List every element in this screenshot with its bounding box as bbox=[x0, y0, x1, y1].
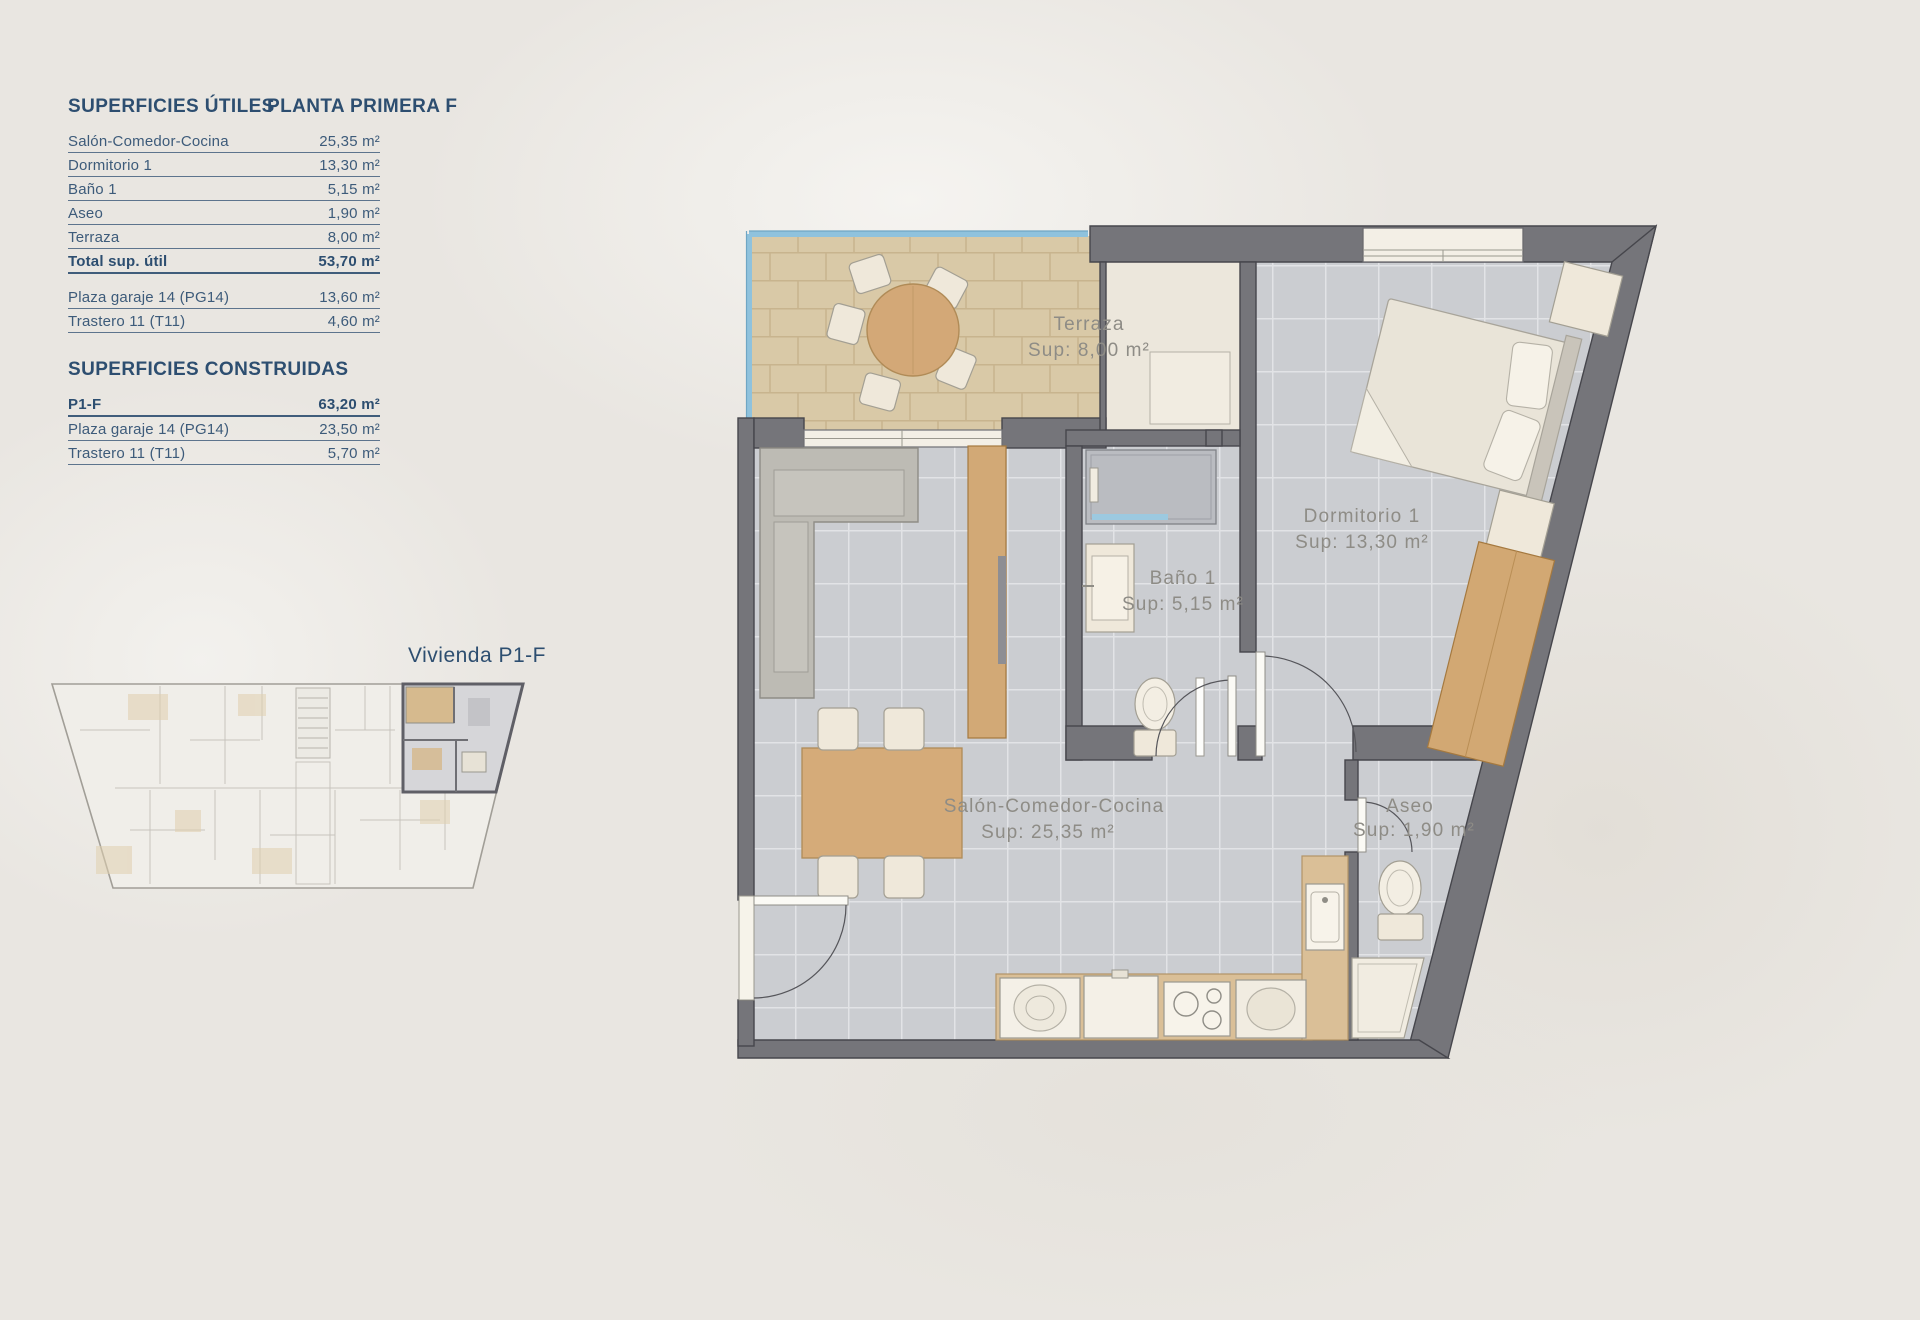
highlighted-unit-p1f bbox=[403, 684, 523, 792]
shower-drain-glass bbox=[1092, 514, 1168, 520]
room-label-bano: Baño 1 bbox=[1150, 568, 1217, 589]
room-sup-dormitorio: Sup: 13,30 m² bbox=[1295, 532, 1429, 553]
room-label-terraza: Terraza bbox=[1053, 314, 1124, 335]
building-overview: Vivienda P1-F bbox=[52, 644, 546, 888]
room-sup-terraza: Sup: 8,00 m² bbox=[1028, 340, 1150, 361]
wall-left-lower bbox=[738, 1000, 754, 1046]
wall-left-upper bbox=[738, 418, 754, 900]
kitchen-sink-cabinet bbox=[1084, 976, 1158, 1038]
room-label-dormitorio: Dormitorio 1 bbox=[1304, 506, 1421, 527]
mini-plan-caption: Vivienda P1-F bbox=[408, 644, 546, 667]
room-label-aseo: Aseo bbox=[1386, 796, 1434, 817]
bathroom-door-leaf bbox=[1228, 676, 1236, 756]
plan-canvas: Vivienda P1-F bbox=[0, 0, 1920, 1280]
aseo-toilet-bowl bbox=[1379, 861, 1421, 915]
wall-aseo-left-upper bbox=[1345, 760, 1358, 800]
bedroom-door-leaf bbox=[1256, 652, 1265, 756]
shower-handle bbox=[1090, 468, 1098, 502]
tv-screen bbox=[998, 556, 1006, 664]
apartment-plan: Terraza Sup: 8,00 m² Dormitorio 1 Sup: 1… bbox=[738, 226, 1656, 1058]
sofa-seat bbox=[774, 470, 904, 516]
wall-terrace-stub bbox=[754, 418, 804, 448]
entrance-threshold bbox=[739, 896, 754, 1000]
aseo-toilet-tank bbox=[1378, 914, 1423, 940]
room-sup-bano: Sup: 5,15 m² bbox=[1122, 594, 1244, 615]
floorplan-sheet: { "tables": { "utiles": { "title": "SUPE… bbox=[0, 0, 1920, 1280]
sofa-seat bbox=[774, 522, 808, 672]
shower-tray bbox=[1086, 450, 1216, 524]
dining-table bbox=[802, 748, 962, 858]
room-sup-aseo: Sup: 1,90 m² bbox=[1353, 820, 1475, 841]
wall-shower-block bbox=[1206, 430, 1222, 446]
shaft-unit bbox=[1150, 352, 1230, 424]
pillow bbox=[1506, 341, 1554, 409]
wall-bath-left bbox=[1066, 446, 1082, 760]
toilet-bowl bbox=[1135, 678, 1175, 730]
toilet-tank bbox=[1134, 730, 1176, 756]
entrance-door-leaf bbox=[754, 896, 848, 905]
faucet-dot bbox=[1322, 897, 1328, 903]
wall-bottom bbox=[738, 1040, 1448, 1058]
glass-partition bbox=[1196, 678, 1204, 756]
faucet bbox=[1112, 970, 1128, 978]
room-sup-salon: Sup: 25,35 m² bbox=[981, 822, 1115, 843]
room-label-salon: Salón-Comedor-Cocina bbox=[944, 796, 1165, 817]
